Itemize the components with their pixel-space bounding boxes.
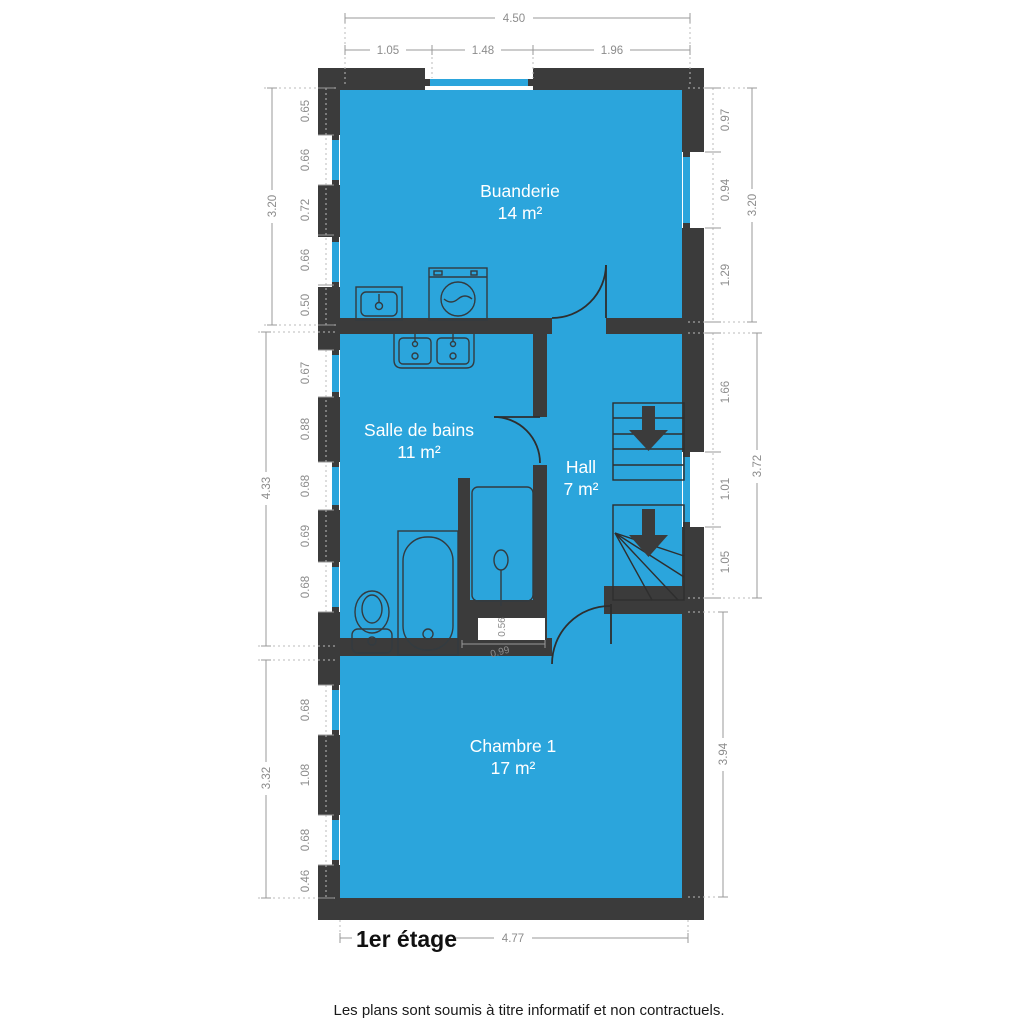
dim-lm-seg-2: 0.88 — [300, 418, 312, 440]
window-left-middle-3 — [318, 562, 340, 612]
dim-lm-seg-1: 0.67 — [300, 362, 312, 384]
dim-ll-seg-4: 0.46 — [300, 870, 312, 892]
dim-right-middle: 1.66 1.01 1.05 3.72 — [705, 333, 764, 598]
dim-lu-seg-3: 0.72 — [300, 199, 312, 221]
wall-bathroom-bottom — [318, 638, 552, 656]
dim-lu-seg-5: 0.50 — [300, 294, 312, 316]
dim-lm-seg-3: 0.68 — [300, 475, 312, 497]
room-area-hall: 7 m² — [564, 479, 599, 499]
wall-shower-left — [458, 478, 470, 608]
dim-ru-seg-1: 0.97 — [720, 109, 732, 131]
window-left-upper-2 — [318, 237, 340, 287]
dim-right-lower: 3.94 — [716, 612, 730, 897]
window-left-upper-1 — [318, 135, 340, 185]
floor-plan: 4.50 1.05 1.48 1.96 0.65 0.66 0.72 0.66 … — [0, 0, 1024, 1024]
window-right-upper — [682, 152, 704, 228]
window-left-middle-1 — [318, 350, 340, 397]
dim-ll-seg-3: 0.68 — [300, 829, 312, 851]
dim-ru-seg-3: 1.29 — [720, 264, 732, 286]
dim-ru-total: 3.20 — [747, 194, 759, 216]
wall-bath-hall-lower — [533, 465, 547, 614]
window-left-lower-2 — [318, 815, 340, 865]
dim-right-upper: 0.97 0.94 1.29 3.20 — [705, 88, 759, 322]
dim-ll-total: 3.32 — [261, 767, 273, 789]
wall-bottom — [318, 898, 704, 920]
dim-lu-seg-4: 0.66 — [300, 249, 312, 271]
room-area-chambre1: 17 m² — [491, 758, 536, 778]
dim-top-seg-2: 1.48 — [472, 45, 494, 57]
dim-top-seg-1: 1.05 — [377, 45, 399, 57]
room-area-salle-de-bains: 11 m² — [397, 442, 441, 462]
dim-top-total: 4.50 — [503, 13, 525, 25]
dim-rm-seg-2: 1.01 — [720, 478, 732, 500]
window-left-middle-2 — [318, 462, 340, 510]
dim-shower-width: 0.56 — [497, 617, 508, 637]
dim-lu-total: 3.20 — [267, 195, 279, 217]
wall-bath-hall-upper — [533, 334, 547, 417]
dim-lm-seg-4: 0.69 — [300, 525, 312, 547]
dim-lm-seg-5: 0.68 — [300, 576, 312, 598]
dim-top: 4.50 1.05 1.48 1.96 — [345, 11, 690, 57]
dim-rm-seg-3: 1.05 — [720, 551, 732, 573]
wall-chambre-top-right — [606, 600, 682, 614]
dim-bottom-total: 4.77 — [502, 933, 524, 945]
dim-ll-seg-1: 0.68 — [300, 699, 312, 721]
dim-top-seg-3: 1.96 — [601, 45, 623, 57]
disclaimer-text: Les plans sont soumis à titre informatif… — [333, 1002, 724, 1019]
window-left-lower-1 — [318, 685, 340, 735]
dim-lu-seg-2: 0.66 — [300, 149, 312, 171]
floor-title: 1er étage — [356, 926, 457, 952]
room-label-buanderie: Buanderie — [480, 181, 560, 201]
floor-plan-page: 4.50 1.05 1.48 1.96 0.65 0.66 0.72 0.66 … — [0, 0, 1024, 1024]
dim-rl-total: 3.94 — [718, 742, 730, 765]
dim-ru-seg-2: 0.94 — [720, 178, 732, 201]
dim-rm-total: 3.72 — [752, 455, 764, 477]
room-label-salle-de-bains: Salle de bains — [364, 420, 474, 440]
window-right-middle — [682, 452, 704, 527]
room-area-buanderie: 14 m² — [498, 203, 543, 223]
window-top — [425, 68, 533, 90]
room-label-hall: Hall — [566, 457, 596, 477]
room-label-chambre1: Chambre 1 — [470, 736, 557, 756]
dim-lm-total: 4.33 — [261, 477, 273, 499]
dim-lu-seg-1: 0.65 — [300, 100, 312, 122]
dim-rm-seg-1: 1.66 — [720, 381, 732, 403]
dim-ll-seg-2: 1.08 — [300, 764, 312, 786]
wall-buanderie-divider-right — [606, 318, 682, 334]
